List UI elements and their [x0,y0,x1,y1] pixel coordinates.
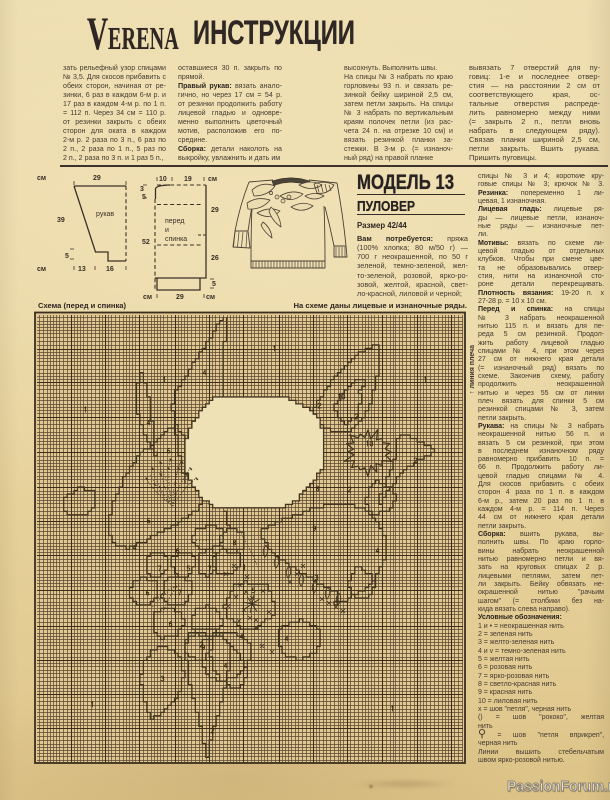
svg-text:29: 29 [211,207,219,214]
svg-text:13: 13 [78,266,86,273]
svg-text:см: см [206,294,215,301]
svg-text:5: 5 [142,194,146,201]
svg-text:5: 5 [65,253,69,260]
svg-text:10: 10 [159,176,167,183]
svg-text:и: и [165,227,169,234]
svg-text:рукав: рукав [96,211,114,218]
svg-text:см: см [37,175,46,182]
svg-text:16: 16 [106,266,114,273]
svg-text:см: см [208,176,217,183]
svg-text:см: см [143,294,152,301]
svg-text:перед: перед [165,218,184,225]
svg-text:52: 52 [142,239,150,246]
svg-text:29: 29 [176,294,184,301]
svg-text:см: см [37,266,46,273]
svg-text:26: 26 [211,255,219,262]
svg-text:29: 29 [93,175,101,182]
svg-text:5: 5 [212,281,216,288]
svg-text:спинка: спинка [165,236,187,243]
svg-text:39: 39 [57,217,65,224]
svg-text:19: 19 [184,176,192,183]
svg-text:3: 3 [140,186,144,193]
